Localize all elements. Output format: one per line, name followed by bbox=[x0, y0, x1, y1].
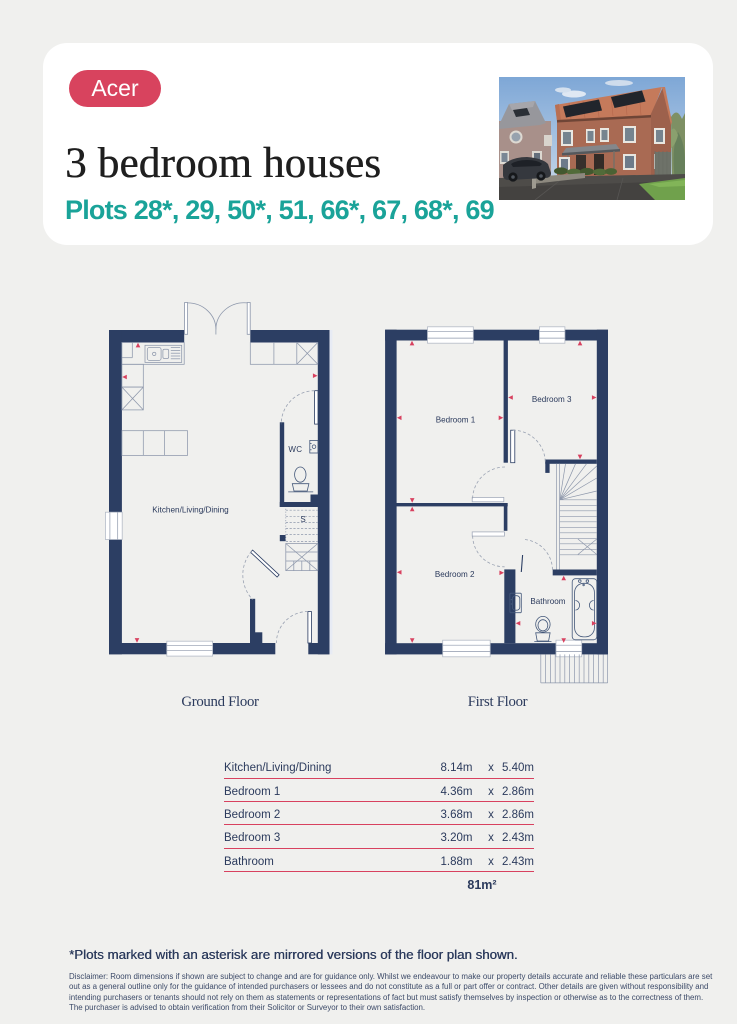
svg-text:Bedroom 2: Bedroom 2 bbox=[435, 570, 475, 579]
svg-text:S: S bbox=[300, 515, 305, 524]
svg-text:WC: WC bbox=[288, 445, 302, 454]
svg-text:Bathroom: Bathroom bbox=[530, 597, 565, 606]
svg-text:Bedroom 1: Bedroom 1 bbox=[436, 416, 476, 425]
svg-text:Kitchen/Living/Dining: Kitchen/Living/Dining bbox=[152, 506, 229, 515]
svg-text:Bedroom 3: Bedroom 3 bbox=[532, 395, 572, 404]
